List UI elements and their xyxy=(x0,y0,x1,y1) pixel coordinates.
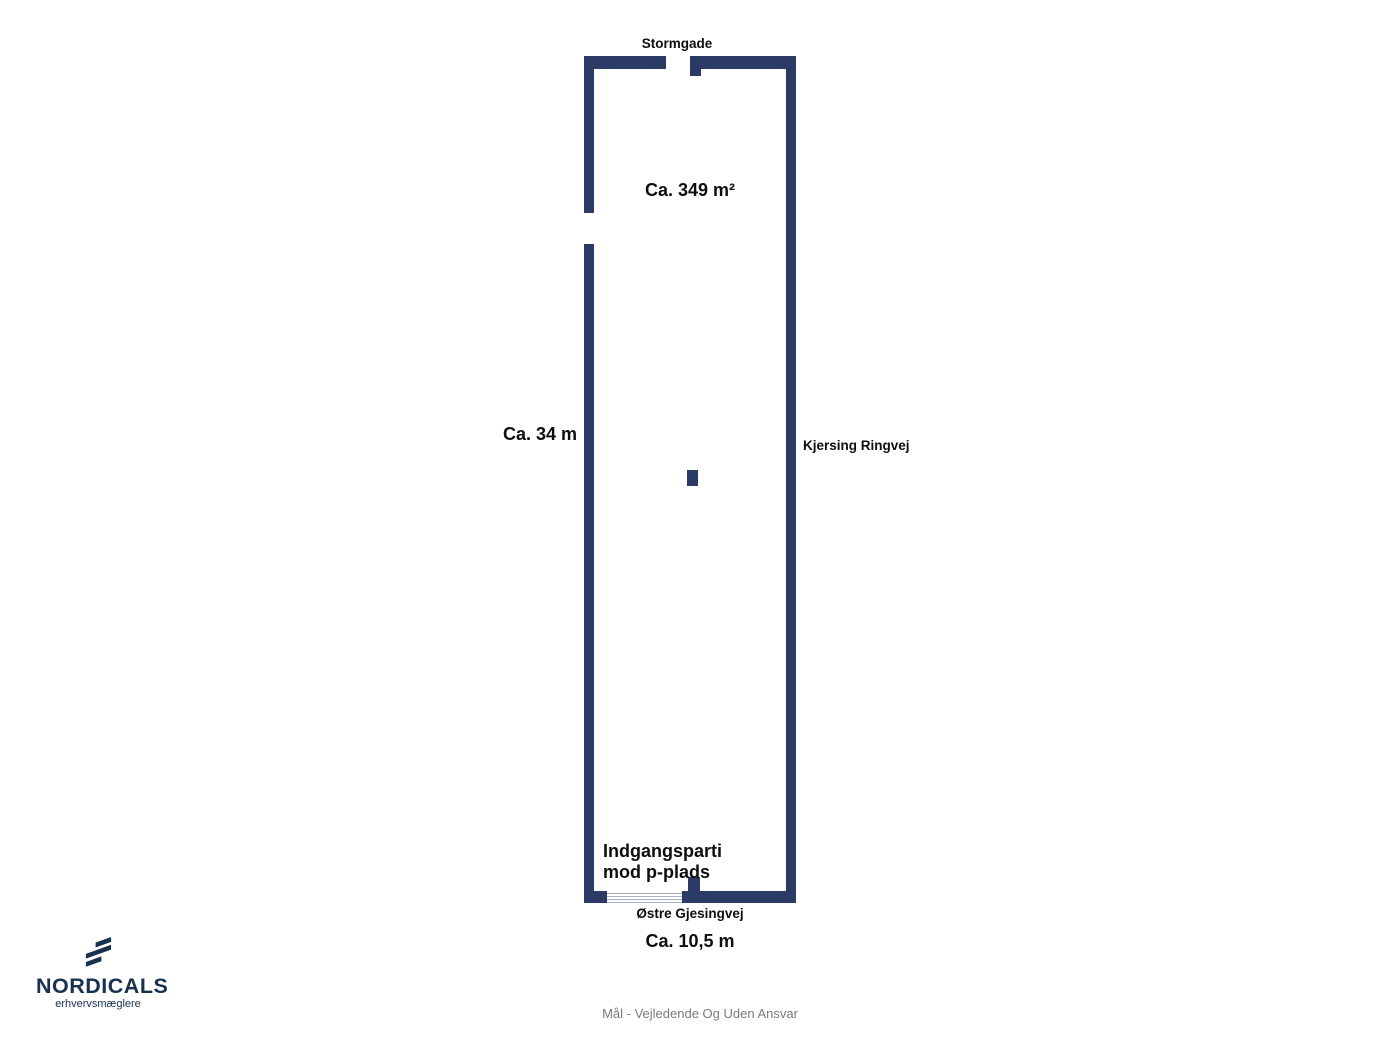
street-label-top: Stormgade xyxy=(579,36,775,51)
entrance-label: Indgangsparti mod p-plads xyxy=(603,841,722,883)
entrance-label-line1: Indgangsparti xyxy=(603,841,722,862)
entrance-label-line2: mod p-plads xyxy=(603,862,722,883)
top-door-opening xyxy=(666,55,690,70)
width-dimension-label: Ca. 10,5 m xyxy=(584,931,796,952)
nordicals-logo: NORDICALS erhvervsmæglere xyxy=(36,937,160,1010)
area-label: Ca. 349 m² xyxy=(584,180,796,201)
top-door-jamb xyxy=(690,56,701,76)
entrance-steps xyxy=(607,891,682,903)
nordicals-stripes-icon xyxy=(85,937,112,967)
floorplan-page: Stormgade Ca. 349 m² Ca. 34 m Kjersing R… xyxy=(0,0,1400,1050)
street-label-bottom: Østre Gjesingvej xyxy=(584,906,796,921)
disclaimer-text: Mål - Vejledende Og Uden Ansvar xyxy=(0,1006,1400,1021)
street-label-right: Kjersing Ringvej xyxy=(803,438,910,453)
brand-name: NORDICALS xyxy=(36,974,160,998)
left-wall-opening xyxy=(581,213,597,244)
height-dimension-label: Ca. 34 m xyxy=(440,424,577,445)
interior-column xyxy=(687,470,698,486)
